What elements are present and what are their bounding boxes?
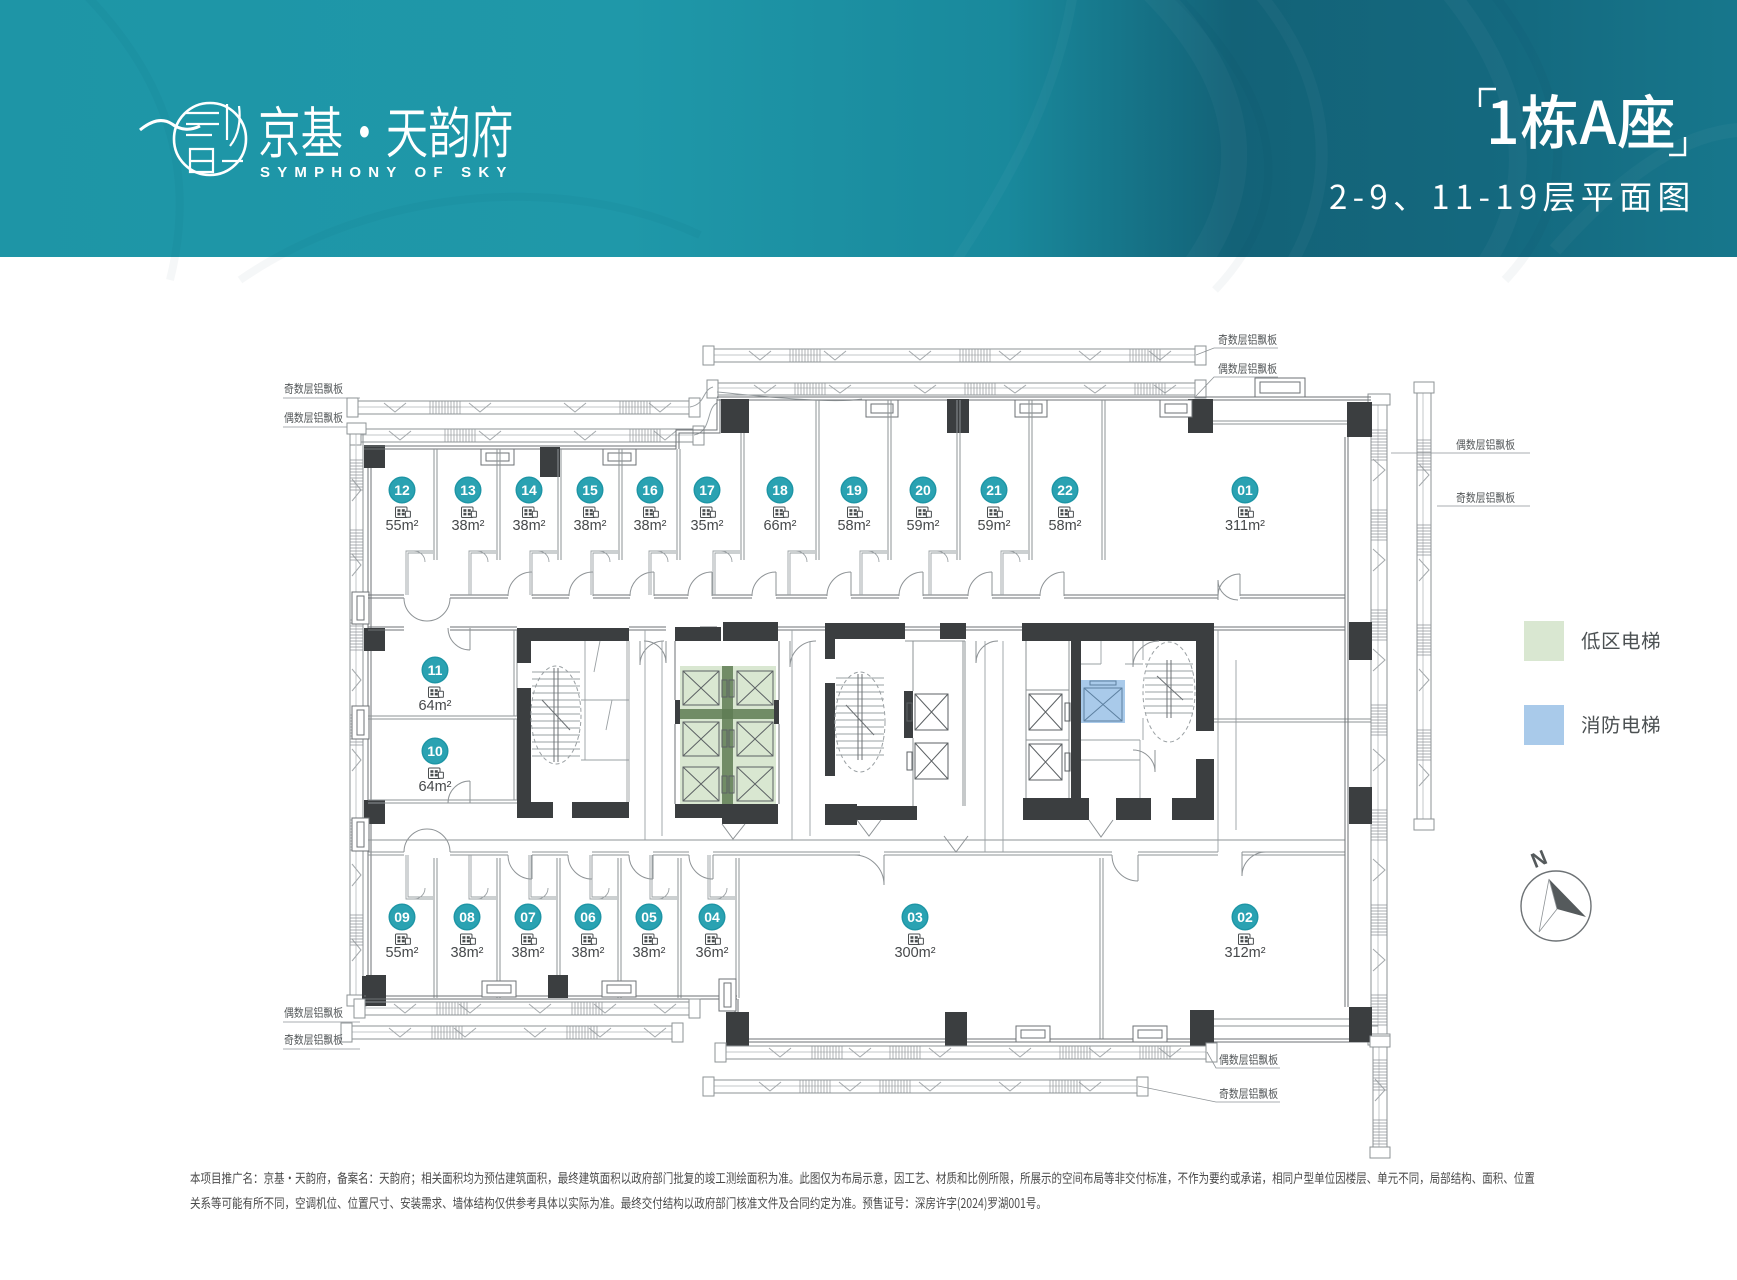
svg-text:06: 06 (580, 909, 596, 925)
svg-text:10: 10 (427, 743, 443, 759)
svg-text:03: 03 (907, 909, 923, 925)
svg-text:58m²: 58m² (1048, 518, 1081, 534)
svg-text:SYMPHONY OF SKY: SYMPHONY OF SKY (260, 164, 514, 181)
svg-text:19: 19 (846, 482, 862, 498)
svg-text:35m²: 35m² (690, 518, 723, 534)
svg-text:38m²: 38m² (511, 945, 544, 961)
svg-text:58m²: 58m² (837, 518, 870, 534)
svg-text:312m²: 312m² (1224, 945, 1265, 961)
svg-text:11: 11 (428, 662, 443, 678)
svg-text:66m²: 66m² (763, 518, 796, 534)
svg-text:38m²: 38m² (450, 945, 483, 961)
svg-text:14: 14 (521, 482, 537, 498)
svg-text:38m²: 38m² (512, 518, 545, 534)
svg-text:01: 01 (1237, 482, 1253, 498)
svg-text:38m²: 38m² (573, 518, 606, 534)
svg-text:64m²: 64m² (418, 698, 451, 714)
svg-text:64m²: 64m² (418, 779, 451, 795)
svg-text:55m²: 55m² (385, 518, 418, 534)
svg-text:38m²: 38m² (633, 518, 666, 534)
svg-text:13: 13 (460, 482, 476, 498)
svg-text:311m²: 311m² (1225, 518, 1265, 534)
svg-text:38m²: 38m² (451, 518, 484, 534)
svg-text:12: 12 (394, 482, 410, 498)
svg-text:05: 05 (641, 909, 657, 925)
svg-text:300m²: 300m² (894, 945, 935, 961)
svg-text:22: 22 (1057, 482, 1073, 498)
svg-text:07: 07 (520, 909, 536, 925)
svg-text:21: 21 (986, 482, 1002, 498)
svg-text:15: 15 (582, 482, 598, 498)
svg-text:38m²: 38m² (571, 945, 604, 961)
svg-text:04: 04 (704, 909, 720, 925)
svg-text:18: 18 (772, 482, 788, 498)
svg-text:38m²: 38m² (632, 945, 665, 961)
svg-text:55m²: 55m² (385, 945, 418, 961)
svg-text:08: 08 (459, 909, 475, 925)
svg-text:20: 20 (915, 482, 931, 498)
svg-text:09: 09 (394, 909, 410, 925)
svg-text:17: 17 (699, 482, 715, 498)
svg-text:59m²: 59m² (906, 518, 939, 534)
svg-text:16: 16 (642, 482, 658, 498)
svg-text:36m²: 36m² (695, 945, 728, 961)
svg-text:59m²: 59m² (977, 518, 1010, 534)
svg-text:02: 02 (1237, 909, 1253, 925)
